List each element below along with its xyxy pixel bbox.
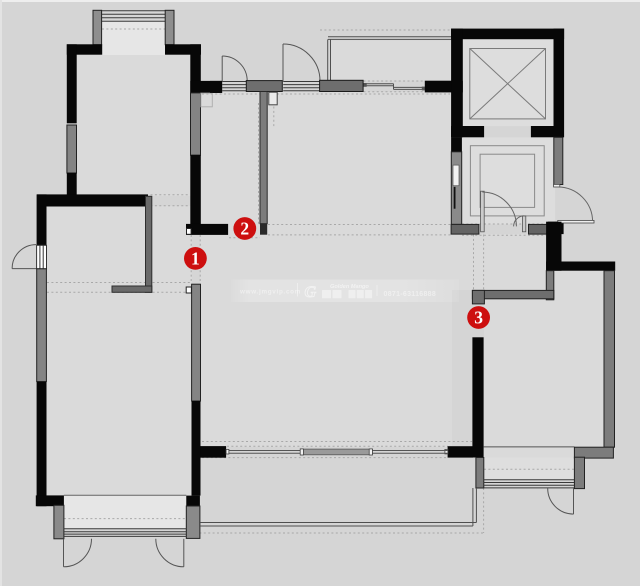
svg-text:www.jmgvip.com: www.jmgvip.com (239, 289, 301, 296)
svg-text:2: 2 (240, 219, 249, 239)
svg-text:G: G (305, 284, 317, 301)
svg-text:3: 3 (474, 308, 483, 328)
svg-text:0871-63116888: 0871-63116888 (384, 291, 437, 298)
svg-text:1: 1 (191, 249, 200, 269)
svg-text:Golden Mango: Golden Mango (330, 284, 369, 290)
